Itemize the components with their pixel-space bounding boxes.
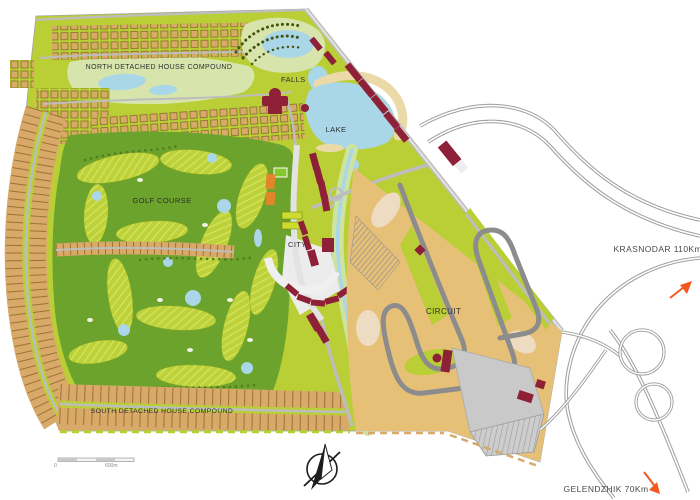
site-plan-map: NORTH DETACHED HOUSE COMPOUND FALLS LAKE… — [0, 0, 700, 500]
south-compound-area — [58, 384, 350, 432]
krasnodar-arrow-icon — [670, 281, 692, 298]
compass-rose-icon — [304, 444, 340, 490]
gelendzhik-arrow-icon — [644, 472, 660, 494]
mid-plot-band — [56, 248, 234, 252]
scale-bar — [58, 458, 134, 462]
golf-course-area — [53, 132, 295, 416]
circuit-entrance-building — [438, 141, 468, 174]
map-canvas — [0, 0, 700, 500]
